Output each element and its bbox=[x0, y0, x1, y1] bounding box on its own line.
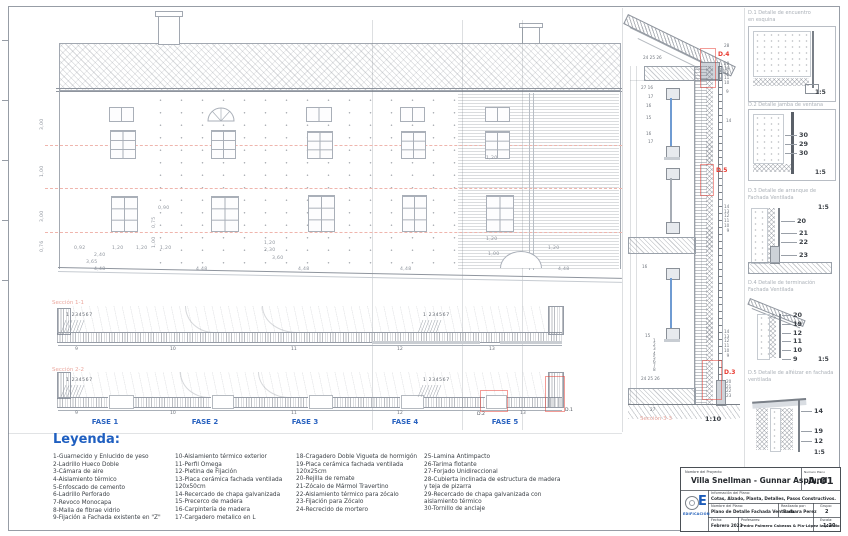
leader-line bbox=[781, 255, 797, 256]
bottom-slab bbox=[628, 388, 696, 405]
dim-label: 4,48 bbox=[298, 268, 309, 273]
downpipe bbox=[529, 93, 530, 270]
callout-numbers: 9 bbox=[726, 90, 729, 95]
detail-callout: 12 bbox=[793, 330, 802, 337]
glazing-line bbox=[670, 278, 672, 328]
legend-item: 15-Precerco de madera bbox=[175, 499, 293, 506]
legend-item: 1-Guarnecido y Enlucido de yeso bbox=[53, 454, 173, 461]
legend-item: 29-Recercado de chapa galvanizada con ai… bbox=[424, 492, 562, 506]
leader-line bbox=[782, 359, 791, 360]
legend-item: 11-Perfil Omega bbox=[175, 462, 293, 469]
fase-4-label: FASE 4 bbox=[383, 419, 427, 426]
leader-line bbox=[785, 135, 797, 136]
segment-number: 11 bbox=[291, 348, 297, 353]
dim-label: 4,48 bbox=[196, 268, 207, 273]
legend-item: 21-Zócalo de Mármol Travertino bbox=[296, 484, 422, 491]
segment-number: 13 bbox=[489, 348, 495, 353]
glazing-line bbox=[670, 98, 672, 146]
edge-tick bbox=[2, 40, 9, 41]
detail-callout: 11 bbox=[793, 338, 802, 345]
segment-number: 12 bbox=[397, 412, 403, 417]
dim-label: 1,00 bbox=[41, 166, 46, 177]
dim-label: 1,00 bbox=[488, 253, 499, 258]
segment-number: 9 bbox=[75, 412, 78, 417]
callout-numbers: 28 bbox=[724, 44, 729, 49]
window bbox=[308, 195, 335, 232]
legend-item: 13-Placa cerámica fachada ventilada 120x… bbox=[175, 477, 293, 491]
leader-line bbox=[801, 411, 812, 412]
leader-lines bbox=[415, 320, 445, 333]
panel-bar bbox=[779, 314, 781, 358]
roof bbox=[59, 43, 621, 91]
dim-label: 1,20 bbox=[160, 247, 171, 252]
window bbox=[400, 107, 425, 122]
fase-1-label: FASE 1 bbox=[83, 419, 127, 426]
legend-item: 4-Aislamiento térmico bbox=[53, 477, 173, 484]
dim-label: 4,48 bbox=[94, 268, 105, 273]
window bbox=[401, 131, 426, 159]
window-sill bbox=[664, 157, 680, 160]
legend-item: 22-Aislamiento térmico para zócalo bbox=[296, 492, 422, 499]
legend-item: 23-Fijación para Zócalo bbox=[296, 499, 422, 506]
door-opening bbox=[109, 395, 134, 409]
detail-title: D.3 Detalle de arranque de bbox=[748, 188, 816, 195]
dim-label: 1,20 bbox=[264, 242, 275, 247]
legend-item: 12-Pletina de Fijación bbox=[175, 469, 293, 476]
insulation-column bbox=[781, 408, 793, 450]
layer-callout: 1 234567 bbox=[66, 314, 93, 319]
callout-numbers: 24 25 26 bbox=[643, 56, 662, 61]
window bbox=[486, 195, 514, 232]
segment-number: 13 bbox=[520, 412, 526, 417]
insulation-band bbox=[753, 78, 809, 86]
leader-line bbox=[782, 333, 791, 334]
window bbox=[306, 107, 332, 122]
wall-hatch bbox=[753, 114, 784, 164]
interior-line bbox=[630, 66, 631, 404]
plan-name-label: Nombre del Plano: bbox=[711, 505, 743, 509]
dim-label: 1,20 bbox=[548, 247, 559, 252]
layer-callout: 1 234567 bbox=[423, 379, 450, 384]
dim-label: 0,92 bbox=[74, 247, 85, 252]
info-value: Cotas, Alzado, Planta, Detalles, Pasos C… bbox=[711, 497, 836, 502]
scale-label: 1:10 bbox=[705, 416, 721, 423]
leader-line bbox=[782, 315, 791, 316]
dim-label: 1,00 bbox=[153, 237, 158, 248]
detail-callout: 30 bbox=[799, 150, 808, 157]
date-label: Fecha: bbox=[711, 519, 722, 523]
column-divider bbox=[622, 8, 623, 432]
dim-label: 0,90 bbox=[158, 207, 169, 212]
legend-item: 16-Carpintería de madera bbox=[175, 507, 293, 514]
callout-numbers: 16 bbox=[646, 132, 651, 137]
scale-label: 1:5 bbox=[815, 90, 826, 96]
wall-band bbox=[233, 397, 308, 408]
detail-callout: 9 bbox=[793, 356, 798, 363]
callout-numbers: 15 bbox=[646, 116, 651, 121]
mid-slab bbox=[628, 237, 696, 254]
detail-callout: 22 bbox=[799, 239, 808, 246]
plan-number-label: Numero Plano bbox=[804, 471, 825, 474]
callout-numbers: 17 bbox=[648, 140, 653, 145]
callout-numbers: 27 16 bbox=[641, 86, 653, 91]
leader-line bbox=[801, 431, 812, 432]
title-block: Nombre del Proyecto Villa Snellman - Gun… bbox=[680, 467, 841, 532]
info-label: Información del Plano: bbox=[711, 492, 750, 496]
detail-callout: 14 bbox=[814, 408, 823, 415]
leader-line bbox=[782, 324, 791, 325]
detail-callout-box bbox=[480, 390, 508, 412]
project-label: Nombre del Proyecto bbox=[685, 471, 722, 475]
sheet-scale-value: 1:20 bbox=[823, 524, 835, 530]
detail-callout: 10 bbox=[793, 347, 802, 354]
dim-label: 0,76 bbox=[41, 241, 46, 252]
author-label: Realizado por: bbox=[781, 505, 806, 509]
segment-number: 9 bbox=[75, 348, 78, 353]
leader-line bbox=[785, 153, 797, 154]
dim-label: 3,00 bbox=[41, 211, 46, 222]
teachers-label: Profesores: bbox=[741, 519, 760, 523]
leader-line bbox=[782, 350, 791, 351]
detail-callout-box bbox=[700, 164, 714, 196]
chimney-cap bbox=[155, 11, 183, 17]
wall-band bbox=[423, 397, 485, 408]
callout-numbers: 24 25 26 bbox=[641, 377, 660, 382]
jamb-bar bbox=[791, 112, 794, 174]
detail-title: D.2 Detalle jamba de ventana bbox=[748, 102, 823, 109]
legend-column-4: 25-Lamina Antimpacto 26-Tarima flotante … bbox=[424, 454, 562, 514]
detail-title: D.5 Detalle de alféizar en fachada bbox=[748, 370, 833, 377]
door-opening bbox=[401, 395, 424, 409]
legend-item: 18-Cragadero Doble Vigueta de hormigón bbox=[296, 454, 422, 461]
segment-number: 10 bbox=[170, 412, 176, 417]
detail-callout-box bbox=[700, 48, 716, 88]
leader-lines bbox=[415, 385, 445, 397]
date-value: Febrero 2023 bbox=[711, 524, 743, 529]
detail-ref-d4: D.4 bbox=[718, 52, 729, 58]
wall-end-cap bbox=[548, 306, 564, 335]
callout-numbers: 15 bbox=[645, 334, 650, 339]
insulation-strip bbox=[770, 314, 776, 358]
window-frame bbox=[666, 268, 680, 280]
level-line bbox=[45, 188, 622, 189]
legend-item: 7-Revoco Monocapa bbox=[53, 500, 173, 507]
legend-item: 9-Fijación a Fachada existente en "Z" bbox=[53, 515, 173, 522]
interior-line bbox=[636, 66, 637, 404]
segment-number: 11 bbox=[291, 412, 297, 417]
group-value: 2 bbox=[825, 510, 828, 516]
dim-label: 1,20 bbox=[112, 247, 123, 252]
floor-hatch bbox=[70, 306, 545, 332]
detail-callout: 29 bbox=[799, 141, 808, 148]
wall-hatch bbox=[757, 314, 770, 360]
legend-title: Leyenda: bbox=[53, 432, 120, 447]
detail-callout-box bbox=[545, 376, 565, 412]
tb-line bbox=[708, 490, 709, 531]
detail-callout-box bbox=[702, 360, 722, 400]
column-divider bbox=[744, 8, 745, 467]
leader-line bbox=[781, 242, 797, 243]
callout-numbers: 17 bbox=[648, 95, 653, 100]
detail-title-line2: Fachada Ventilada bbox=[748, 195, 794, 202]
legend-column-1: 1-Guarnecido y Enlucido de yeso 2-Ladril… bbox=[53, 454, 173, 523]
scale-label: 1:5 bbox=[815, 170, 826, 176]
edge-tick bbox=[2, 220, 9, 221]
legend-item: 3-Cámara de aire bbox=[53, 469, 173, 476]
detail-ref-d5: D.5 bbox=[716, 168, 727, 174]
chimney bbox=[522, 26, 540, 44]
dim-label: 1,20 bbox=[486, 157, 497, 162]
window bbox=[109, 107, 134, 122]
dim-label: 4,48 bbox=[558, 268, 569, 273]
author-value: Barbara Perez bbox=[783, 510, 817, 515]
detail-callout: 30 bbox=[799, 132, 808, 139]
window bbox=[402, 195, 427, 232]
leader-line bbox=[781, 221, 795, 222]
detail-callout: 20 bbox=[797, 218, 806, 225]
edge-tick bbox=[2, 100, 9, 101]
segment-number: 12 bbox=[397, 348, 403, 353]
group-label: Grupo: bbox=[820, 505, 832, 509]
fase-2-label: FASE 2 bbox=[183, 419, 227, 426]
detail-title-line2: en esquina bbox=[748, 17, 775, 24]
dim-label: 1,20 bbox=[486, 238, 497, 243]
leader-line bbox=[782, 341, 791, 342]
edge-tick bbox=[2, 280, 9, 281]
insulation-band bbox=[753, 164, 793, 172]
legend-item: 27-Forjado Unidireccional bbox=[424, 469, 562, 476]
callout-numbers: 14 13 12 11 10 9 bbox=[724, 330, 729, 358]
axis-line bbox=[522, 20, 523, 430]
wall-band bbox=[57, 332, 562, 343]
callout-numbers: 20 19 12 11 10 bbox=[724, 62, 729, 86]
legend-column-2: 10-Aislamiento térmico exterior 11-Perfi… bbox=[175, 454, 293, 522]
detail-callout: 20 bbox=[793, 312, 802, 319]
door-opening bbox=[309, 395, 333, 409]
legend-item: 6-Ladrillo Perforado bbox=[53, 492, 173, 499]
dim-label: 3,65 bbox=[86, 261, 97, 266]
ventilated-panel-joints bbox=[458, 94, 619, 269]
dim-label: 4,48 bbox=[400, 268, 411, 273]
insulation-column bbox=[756, 408, 768, 450]
dim-label: 2,40 bbox=[94, 254, 105, 259]
detail-callout: 21 bbox=[799, 230, 808, 237]
leader-line bbox=[801, 441, 812, 442]
dim-label: 3,60 bbox=[272, 257, 283, 262]
legend-item: 26-Tarima flotante bbox=[424, 462, 562, 469]
window bbox=[485, 131, 510, 159]
floor-line bbox=[630, 80, 694, 81]
dim-label: 1,20 bbox=[136, 247, 147, 252]
fase-3-label: FASE 3 bbox=[283, 419, 327, 426]
plan-number: A.01 bbox=[808, 476, 834, 488]
plinth-band bbox=[500, 341, 562, 344]
callout-numbers: 16 bbox=[646, 104, 651, 109]
school-logo-icon: E bbox=[698, 494, 707, 509]
window bbox=[211, 196, 239, 232]
wall-insulation-layer bbox=[706, 66, 713, 404]
window bbox=[111, 196, 138, 232]
segment-number: 10 bbox=[170, 348, 176, 353]
dim-line bbox=[58, 345, 562, 346]
window bbox=[110, 130, 136, 159]
callout-numbers: 20 21 22 23 bbox=[726, 380, 731, 399]
fan-window bbox=[207, 103, 235, 122]
legend-item: 5-Enfoscado de cemento bbox=[53, 485, 173, 492]
leader-lines bbox=[58, 385, 88, 397]
project-name: Villa Snellman - Gunnar Asplund bbox=[691, 477, 827, 486]
callout-numbers: 16 bbox=[642, 265, 647, 270]
legend-item: 14-Recercado de chapa galvanizada bbox=[175, 492, 293, 499]
legend-item: 17-Cargadero metalico en L bbox=[175, 515, 293, 522]
level-line bbox=[45, 232, 622, 233]
panel-bar bbox=[798, 400, 800, 452]
detail-ref-d2: D.2 bbox=[477, 413, 485, 418]
floor-slab bbox=[748, 262, 832, 274]
legend-item: 19-Placa cerámica fachada ventilada 120x… bbox=[296, 462, 422, 476]
callout-numbers: 27 bbox=[650, 408, 655, 413]
wall-hatch bbox=[753, 31, 811, 77]
dim-label: 2,30 bbox=[264, 249, 275, 254]
scale-label: 1:5 bbox=[818, 357, 829, 363]
layer-callout: 1 234567 bbox=[423, 314, 450, 319]
window-frame bbox=[666, 222, 680, 234]
legend-item: 28-Cubierta inclinada de estructura de m… bbox=[424, 477, 562, 491]
scale-label: 1:5 bbox=[814, 450, 825, 456]
wall-band bbox=[133, 397, 211, 408]
section-caption: Sección 3-3 bbox=[640, 417, 672, 423]
detail-ref-d3: D.3 bbox=[724, 370, 735, 376]
edge-tick bbox=[2, 160, 9, 161]
floor-hatch bbox=[70, 372, 545, 397]
window-frame bbox=[666, 168, 680, 180]
legend-item: 24-Recrecido de mortero bbox=[296, 507, 422, 514]
detail-callout: 19 bbox=[793, 321, 802, 328]
fase-5-label: FASE 5 bbox=[483, 419, 527, 426]
window bbox=[307, 131, 333, 159]
legend-column-3: 18-Cragadero Doble Vigueta de hormigón 1… bbox=[296, 454, 422, 515]
wall-hatch bbox=[751, 208, 768, 264]
tb-line bbox=[681, 490, 840, 491]
detail-callout: 12 bbox=[814, 438, 823, 445]
window bbox=[485, 107, 510, 122]
legend-item: 2-Ladrillo Hueco Doble bbox=[53, 462, 173, 469]
window-sill bbox=[664, 339, 680, 342]
detail-ref-d1: D.1 bbox=[565, 409, 573, 414]
axis-line bbox=[462, 20, 463, 430]
callout-numbers: 14 13 12 11 10 9 bbox=[724, 205, 729, 233]
org-name: EDIFICACIÓN bbox=[683, 512, 710, 516]
legend-item: 25-Lamina Antimpacto bbox=[424, 454, 562, 461]
window bbox=[211, 130, 236, 159]
window-frame bbox=[666, 88, 680, 100]
dim-label: 0,75 bbox=[153, 217, 158, 228]
legend-item: 20-Rejilla de remate bbox=[296, 476, 422, 483]
leader-line bbox=[781, 233, 797, 234]
legend-item: 30-Tornillo de anclaje bbox=[424, 506, 562, 513]
legend-item: 10-Aislamiento térmico exterior bbox=[175, 454, 293, 461]
wall-band bbox=[57, 397, 108, 408]
detail-title-line2: Fachada Ventilada bbox=[748, 287, 794, 294]
axis-line bbox=[372, 20, 373, 430]
dim-label: 3,00 bbox=[41, 119, 46, 130]
seal-inner-icon bbox=[689, 500, 695, 506]
panel-bar bbox=[812, 31, 814, 88]
detail-callout: 23 bbox=[799, 252, 808, 259]
wall-hatch bbox=[770, 408, 781, 452]
drawing-sheet: 0,92 1,20 1,20 2,40 3,65 4,48 4,48 4,48 … bbox=[0, 0, 848, 536]
detail-title: D.1 Detalle de encuentro bbox=[748, 10, 811, 17]
layer-callout: 1 234567 bbox=[66, 379, 93, 384]
detail-title-line2: ventilada bbox=[748, 377, 771, 384]
legend-item: 8-Malla de fibrae vidrio bbox=[53, 508, 173, 515]
leader-lines bbox=[58, 320, 88, 333]
callout-numbers: 14 bbox=[726, 119, 731, 124]
chimney bbox=[158, 14, 180, 45]
detail-callout: 19 bbox=[814, 428, 823, 435]
downpipe bbox=[533, 93, 534, 270]
ventilated-panel-layer bbox=[718, 66, 723, 404]
wall-band bbox=[332, 397, 400, 408]
sheet-scale-label: Escala: bbox=[820, 519, 832, 523]
scale-label: 1:5 bbox=[818, 205, 829, 211]
plinth-band bbox=[372, 341, 480, 344]
door-opening bbox=[212, 395, 234, 409]
callout-numbers: 1 2 3 4 5 6 7 8 bbox=[653, 339, 656, 373]
glazing-line-gray bbox=[670, 178, 672, 222]
leader-line bbox=[785, 144, 797, 145]
detail-title: D.4 Detalle de terminación bbox=[748, 280, 815, 287]
